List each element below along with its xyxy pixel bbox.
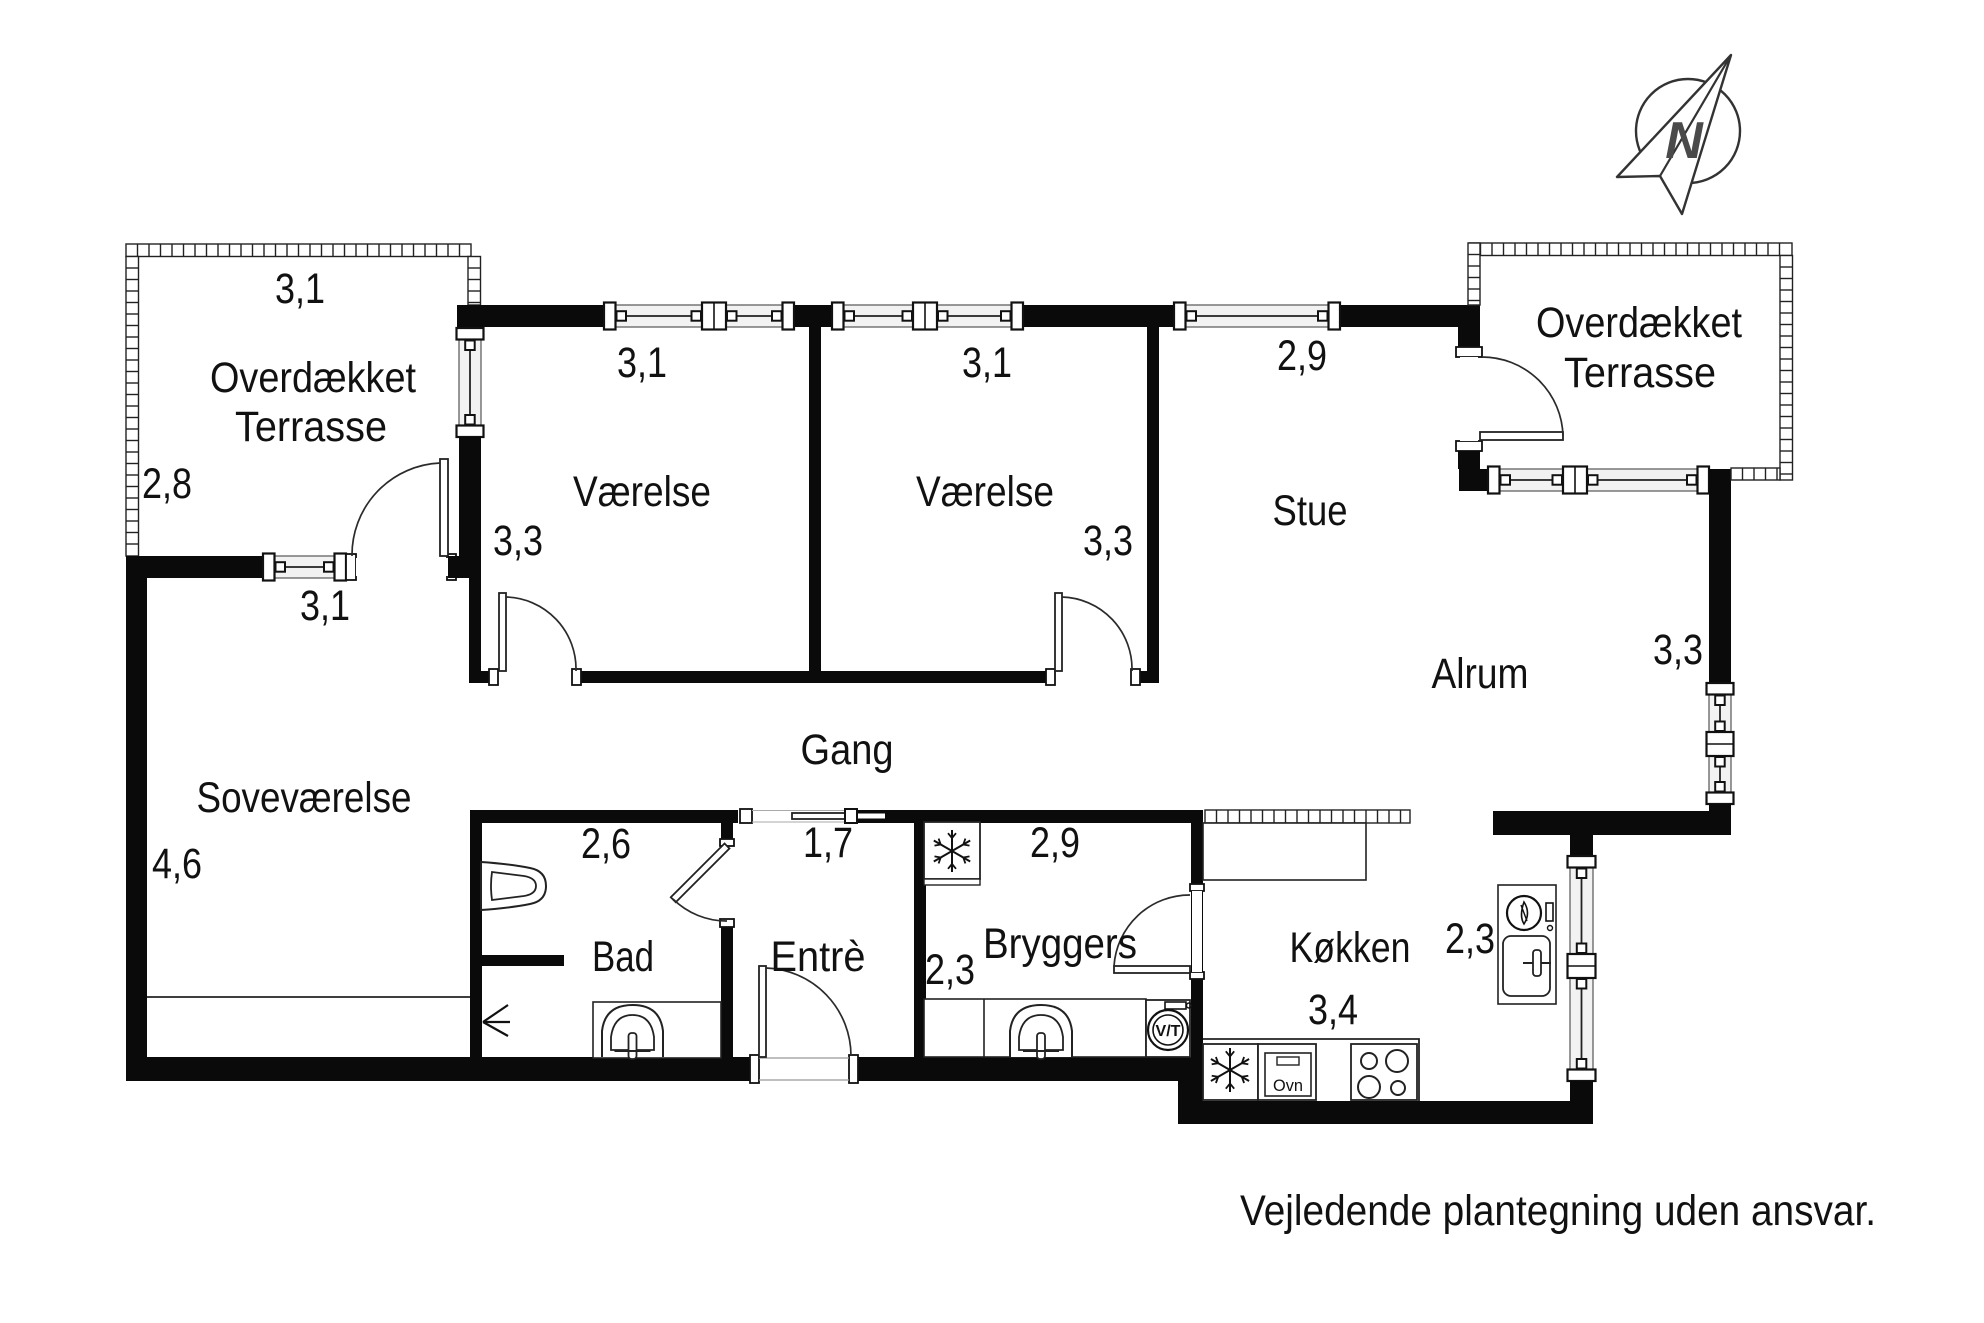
svg-text:2,3: 2,3 [1445, 915, 1495, 963]
svg-text:3,1: 3,1 [275, 265, 325, 313]
svg-text:Ovn: Ovn [1273, 1076, 1303, 1095]
svg-text:Bryggers: Bryggers [983, 920, 1137, 968]
svg-text:Køkken: Køkken [1290, 924, 1411, 972]
svg-text:Vejledende plantegning uden an: Vejledende plantegning uden ansvar. [1240, 1187, 1876, 1235]
svg-text:Entrè: Entrè [771, 933, 866, 981]
svg-text:Stue: Stue [1273, 487, 1348, 535]
svg-text:V/T: V/T [1156, 1023, 1181, 1040]
svg-text:2,3: 2,3 [925, 946, 975, 994]
svg-text:3,1: 3,1 [617, 339, 667, 387]
svg-text:3,1: 3,1 [300, 582, 350, 630]
svg-text:Terrasse: Terrasse [1564, 349, 1716, 397]
svg-text:4,6: 4,6 [152, 840, 202, 888]
svg-text:3,1: 3,1 [962, 339, 1012, 387]
svg-text:3,3: 3,3 [493, 517, 543, 565]
svg-text:Overdækket: Overdækket [1536, 299, 1742, 347]
svg-text:N: N [1665, 112, 1704, 170]
svg-text:3,3: 3,3 [1653, 626, 1703, 674]
svg-text:Værelse: Værelse [573, 468, 711, 516]
svg-text:3,4: 3,4 [1308, 986, 1358, 1034]
svg-text:Gang: Gang [801, 726, 894, 774]
svg-text:2,8: 2,8 [142, 460, 192, 508]
svg-text:2,9: 2,9 [1277, 332, 1327, 380]
svg-text:Soveværelse: Soveværelse [197, 774, 412, 822]
svg-text:Overdækket: Overdækket [210, 354, 416, 402]
svg-text:2,6: 2,6 [581, 820, 631, 868]
svg-text:Værelse: Værelse [916, 468, 1054, 516]
svg-text:Alrum: Alrum [1432, 650, 1529, 698]
svg-text:Terrasse: Terrasse [235, 403, 387, 451]
svg-text:Bad: Bad [592, 933, 654, 981]
svg-text:1,7: 1,7 [803, 819, 853, 867]
svg-text:3,3: 3,3 [1083, 517, 1133, 565]
svg-text:2,9: 2,9 [1030, 819, 1080, 867]
